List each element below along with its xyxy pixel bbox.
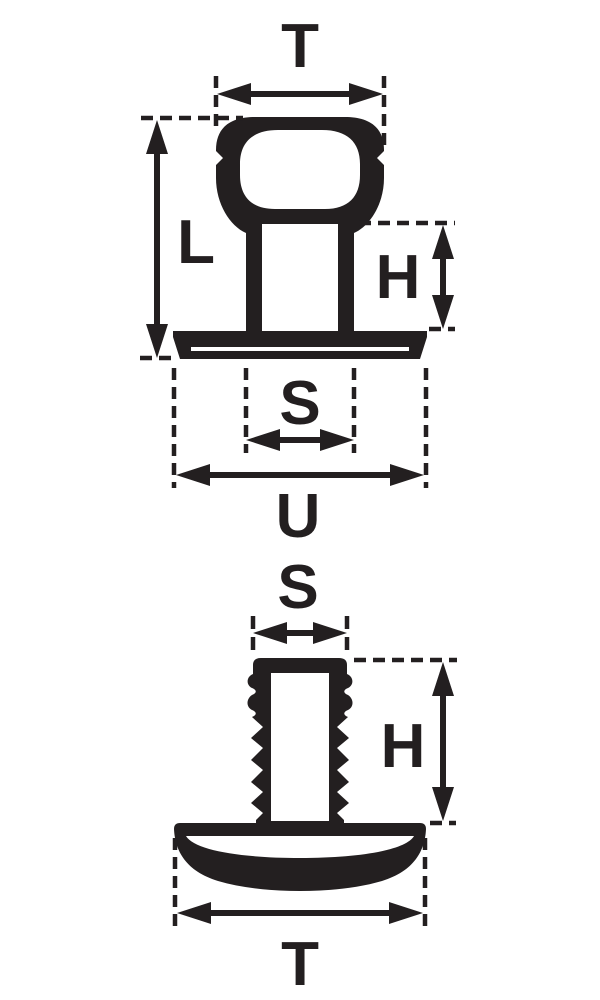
s2-arrowhead-left bbox=[253, 622, 287, 644]
bottom-figure: S H T bbox=[174, 553, 457, 999]
diagram-svg: T L H S bbox=[0, 0, 600, 1000]
dim-label-bottom-H: H bbox=[381, 712, 426, 781]
s2-arrowhead-right bbox=[313, 622, 347, 644]
t2-arrowhead-left bbox=[177, 902, 211, 924]
dim-label-top-U: U bbox=[276, 482, 321, 551]
dim-label-top-H: H bbox=[376, 243, 421, 312]
t-arrowhead-right bbox=[349, 83, 383, 105]
u-arrowhead-left bbox=[176, 464, 210, 486]
s-arrowhead-right bbox=[320, 429, 354, 451]
fastener-dimension-diagram: T L H S bbox=[0, 0, 600, 1000]
dim-label-top-S: S bbox=[279, 369, 320, 438]
dim-label-top-T: T bbox=[281, 12, 319, 81]
h2-arrowhead-top bbox=[432, 662, 454, 696]
dim-label-bottom-T: T bbox=[281, 930, 319, 999]
h-arrowhead-top bbox=[432, 225, 454, 259]
dim-label-top-L: L bbox=[177, 208, 215, 277]
l-arrowhead-top bbox=[146, 120, 168, 154]
h-arrowhead-bottom bbox=[432, 295, 454, 329]
t-arrowhead-left bbox=[217, 83, 251, 105]
l-arrowhead-bottom bbox=[146, 324, 168, 358]
s-arrowhead-left bbox=[246, 429, 280, 451]
u-arrowhead-right bbox=[390, 464, 424, 486]
dim-label-bottom-S: S bbox=[277, 553, 318, 622]
h2-arrowhead-bottom bbox=[432, 787, 454, 821]
t2-arrowhead-right bbox=[389, 902, 423, 924]
top-figure: T L H S bbox=[140, 12, 455, 551]
